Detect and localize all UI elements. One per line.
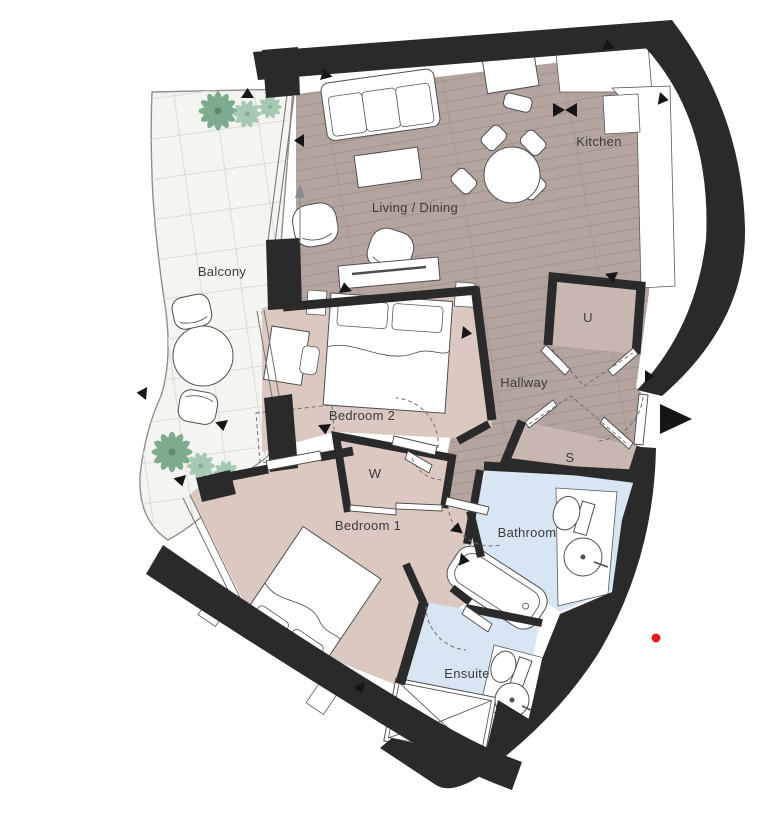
label-ensuite: Ensuite — [444, 666, 489, 681]
balcony-table — [173, 326, 233, 386]
label-utility: U — [583, 310, 593, 325]
label-kitchen: Kitchen — [576, 134, 621, 149]
wall-top-left-pier — [262, 47, 300, 98]
location-dot — [652, 634, 661, 643]
label-living-dining: Living / Dining — [372, 200, 458, 215]
wall-pier — [266, 238, 302, 310]
label-hallway: Hallway — [500, 375, 548, 390]
label-bathroom: Bathroom — [498, 525, 557, 540]
floor-plan-drawing: Balcony Living / Dining Kitchen Hallway … — [0, 0, 762, 815]
floor-plan: Balcony Living / Dining Kitchen Hallway … — [0, 0, 762, 815]
label-bedroom-2: Bedroom 2 — [329, 408, 395, 423]
bed-2 — [323, 293, 453, 413]
label-storage: S — [566, 450, 575, 465]
label-bedroom-1: Bedroom 1 — [335, 518, 401, 533]
label-wardrobe: W — [369, 466, 382, 481]
label-balcony: Balcony — [198, 264, 247, 279]
